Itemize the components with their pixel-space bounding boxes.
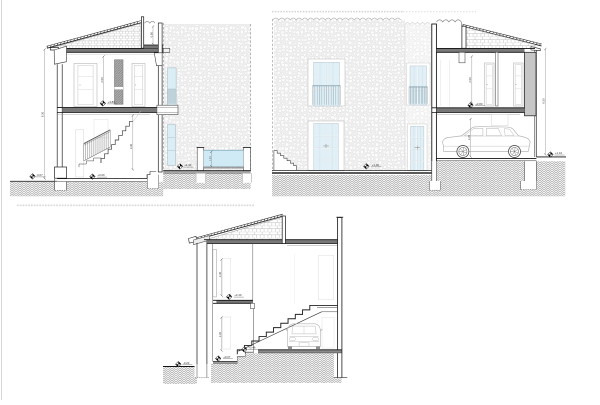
svg-text:6.50: 6.50 [541,98,545,104]
svg-text:+3.80: +3.80 [475,102,483,106]
svg-text:+0.46: +0.46 [248,346,256,350]
svg-text:6.30: 6.30 [40,111,44,117]
svg-text:+1.40: +1.40 [372,163,380,167]
svg-text:2.30: 2.30 [218,271,222,277]
svg-text:2.20: 2.20 [467,134,471,140]
svg-text:+0.07: +0.07 [223,355,231,359]
svg-text:+3.80: +3.80 [108,100,116,104]
svg-text:+0.00: +0.00 [98,173,106,177]
svg-text:1.30: 1.30 [209,156,212,161]
svg-text:2.50: 2.50 [468,77,472,83]
svg-text:3.30: 3.30 [129,143,133,149]
svg-text:2.50: 2.50 [100,77,104,83]
svg-text:+1.10: +1.10 [555,151,563,155]
svg-text:+3.40: +3.40 [234,293,242,297]
svg-text:-0.20: -0.20 [183,361,190,365]
svg-text:2.20: 2.20 [218,331,222,337]
svg-text:-0.07: -0.07 [36,173,43,177]
svg-text:+1.40: +1.40 [184,163,192,167]
svg-text:0.90: 0.90 [149,32,153,38]
